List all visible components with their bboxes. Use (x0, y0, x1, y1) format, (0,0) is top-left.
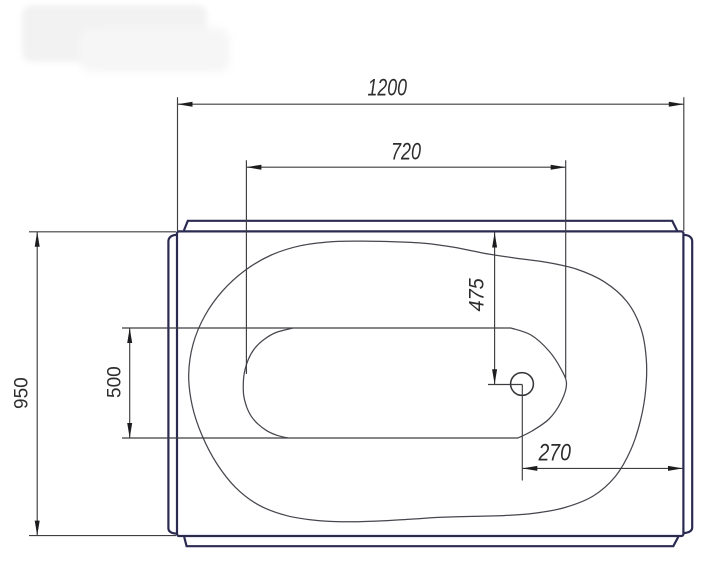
svg-text:950: 950 (12, 377, 33, 409)
svg-text:270: 270 (538, 438, 572, 466)
svg-text:1200: 1200 (368, 74, 408, 101)
svg-text:475: 475 (465, 278, 489, 312)
svg-text:500: 500 (105, 366, 126, 398)
svg-text:720: 720 (391, 138, 421, 165)
